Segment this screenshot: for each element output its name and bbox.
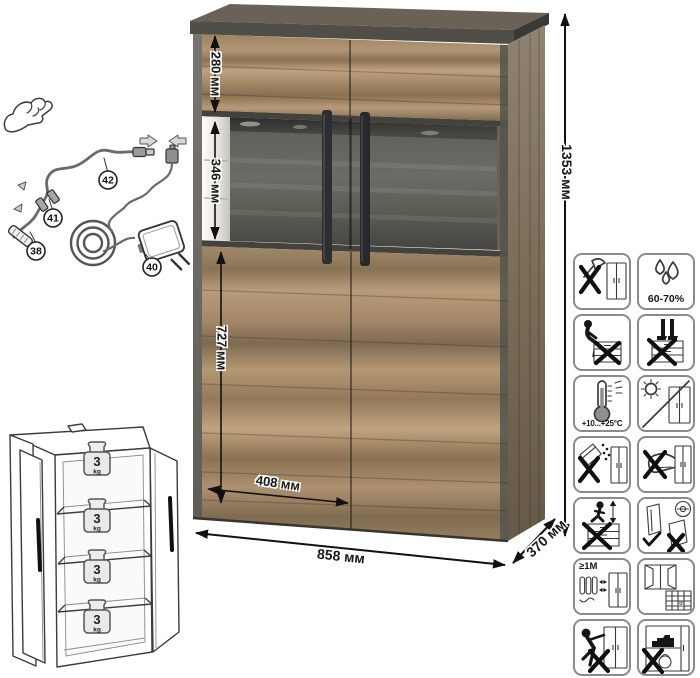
plug-direction-arrow [140,135,157,147]
heat-source-distance-icon: ≥1M [573,558,631,615]
connect-direction-arrow [14,204,22,212]
power-adapter [134,220,191,280]
svg-text:kg: kg [93,627,101,634]
temperature-range-icon: +10...+25°C [573,375,631,432]
left-door-handle [38,520,40,570]
temperature-label: +10...+25°C [575,419,629,428]
right-door-open [150,448,179,652]
no-abrasive-cleaning-icon [637,436,695,493]
dim-label-bottom-section: 727 мм [215,326,230,371]
cabinet-body [190,4,549,541]
cable-connector-barrel [133,148,146,157]
no-standing-icon [637,314,695,371]
svg-text:kg: kg [93,577,101,584]
heat-distance-label: ≥1M [579,561,597,572]
svg-text:3: 3 [93,511,100,526]
led-transformer-box [68,424,86,432]
shelf-load-diagram: 3 kg 3 kg 3 kg 3 kg [0,420,200,678]
ventilate-room-icon: 21 [637,558,695,615]
svg-text:3: 3 [93,612,100,627]
part-callout-40: 40 [143,258,161,276]
no-heavy-items-icon [637,619,695,676]
humidity-icon: 60-70% [637,253,695,310]
svg-text:kg: kg [93,526,101,533]
connect-direction-arrow [18,182,26,190]
svg-text:38: 38 [30,246,42,258]
calendar-day-label: 21 [678,601,684,606]
svg-text:3: 3 [93,454,100,469]
dim-label-top-section: 280 мм [209,52,224,97]
svg-text:3: 3 [93,562,100,577]
no-direct-sunlight-icon [637,375,695,432]
part-callout-42: 42 [99,171,117,189]
led-wiring-diagram: 42 41 38 40 [0,85,200,290]
svg-text:42: 42 [102,175,114,187]
dim-label-middle-section: 346 мм [209,159,224,204]
no-impact-tools-icon [573,253,631,310]
no-dragging-icon [573,619,631,676]
svg-text:kg: kg [93,469,101,476]
led-cable [14,150,133,237]
dim-label-height: 1353 мм [559,144,575,200]
dc-plug [166,149,178,163]
no-spilling-liquids-icon [573,436,631,493]
product-diagram: 42 41 38 40 [0,0,700,678]
svg-text:40: 40 [146,262,158,274]
no-jumping-icon [573,497,631,554]
no-sitting-icon [573,314,631,371]
part-callout-41: 41 [44,209,62,227]
transport-doors-upright-icon [637,497,695,554]
care-icon-grid: 60-70% [573,253,695,676]
part-callout-38: 38 [27,242,45,260]
svg-text:41: 41 [47,213,59,225]
humidity-label: 60-70% [639,293,693,305]
right-door-handle [170,498,172,550]
